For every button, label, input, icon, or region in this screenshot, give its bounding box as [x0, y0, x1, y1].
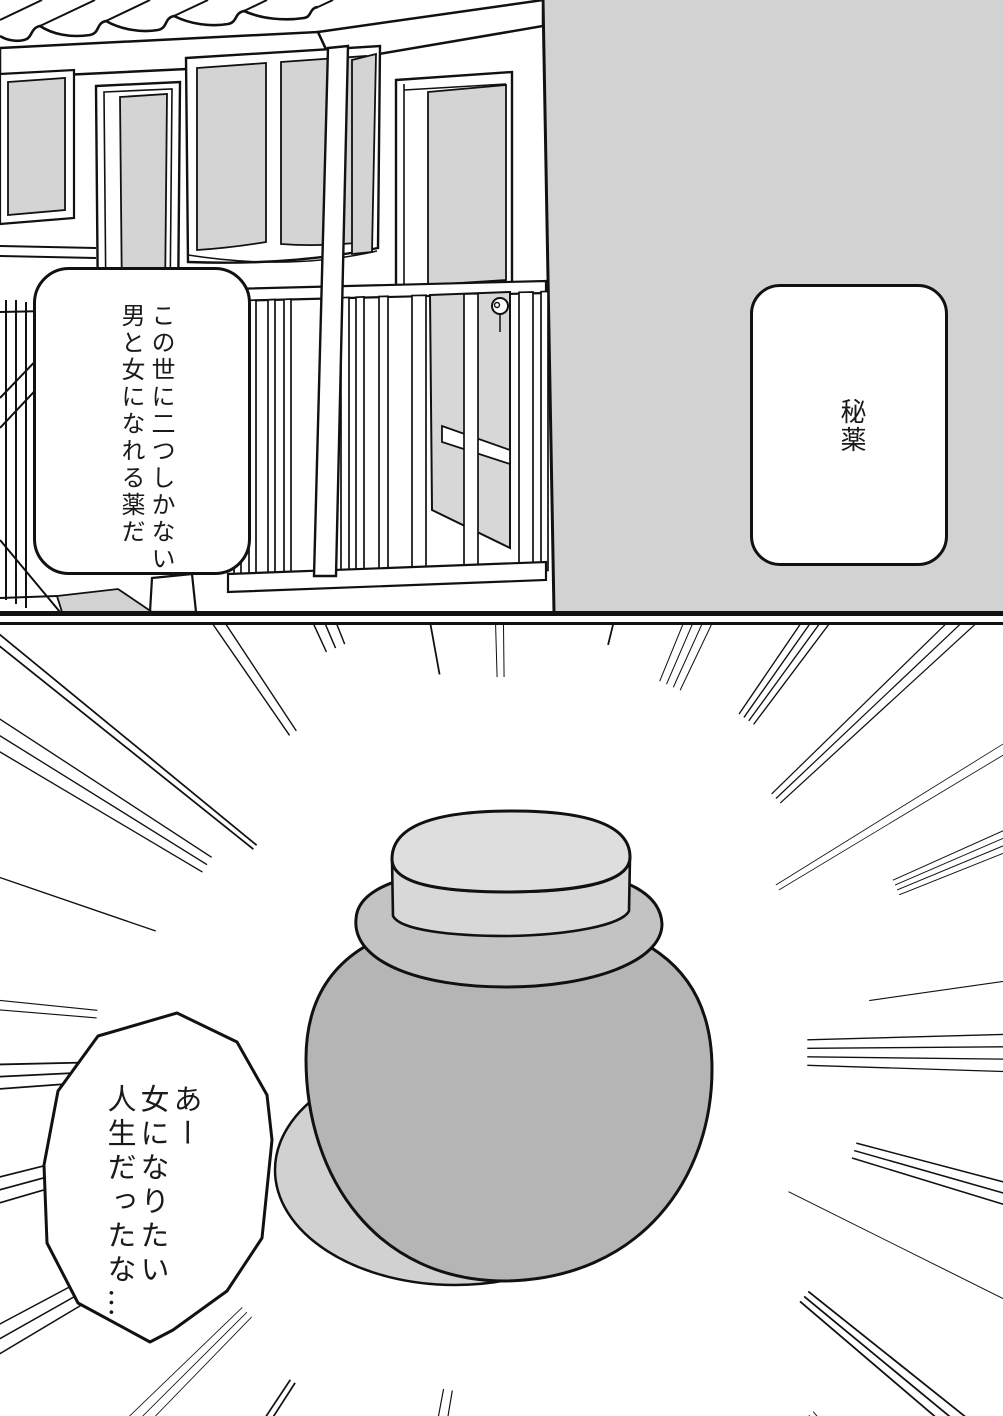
speech-line: 秘薬	[836, 398, 866, 468]
door-knob	[492, 298, 508, 314]
speech-line: この世に二つしかない	[146, 303, 176, 585]
jar-lid-top	[392, 811, 630, 892]
window-left	[0, 70, 74, 224]
speech-text: 秘薬	[836, 398, 866, 468]
medicine-jar	[275, 811, 712, 1285]
window-corner	[352, 54, 376, 254]
speech-line: あー	[169, 1084, 202, 1336]
speech-text: あー 女になりたい 人生だったな…	[102, 1084, 202, 1336]
window-center	[186, 46, 380, 263]
panel1-bottom-border	[0, 611, 1003, 616]
balcony-lines	[0, 246, 96, 258]
speech-line: 男と女になれる薬だ	[116, 303, 146, 585]
window-right	[396, 72, 512, 292]
speech-line: 女になりたい	[136, 1084, 169, 1336]
manga-page: この世に二つしかない 男と女になれる薬だ 秘薬 あー 女になりたい 人生だったな…	[0, 0, 1003, 1416]
speech-line: 人生だったな…	[103, 1084, 136, 1336]
speech-text: この世に二つしかない 男と女になれる薬だ	[114, 303, 176, 585]
